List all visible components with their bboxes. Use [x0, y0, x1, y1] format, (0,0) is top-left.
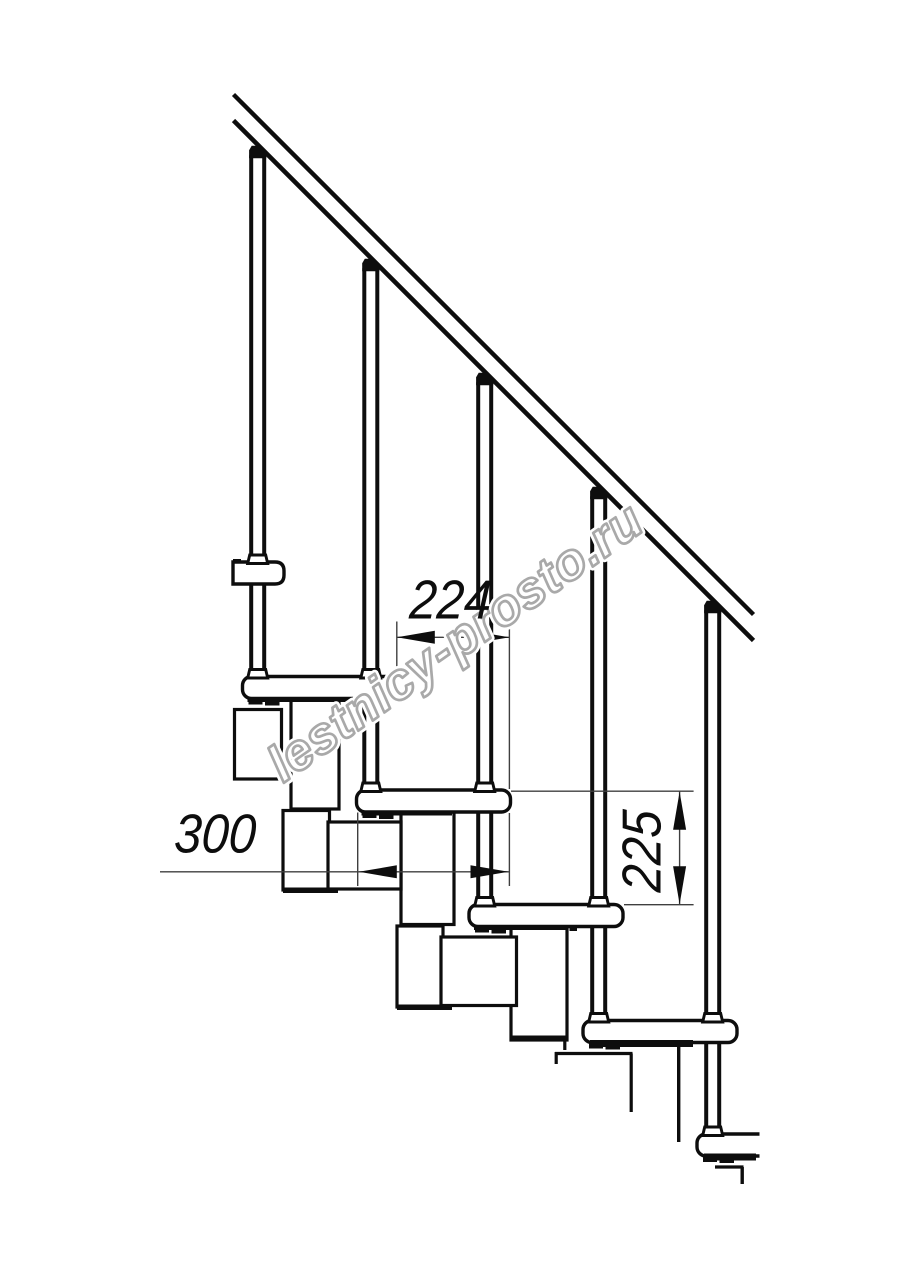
svg-text:224: 224 — [407, 570, 493, 631]
svg-text:225: 225 — [612, 808, 673, 895]
svg-text:300: 300 — [173, 804, 258, 865]
